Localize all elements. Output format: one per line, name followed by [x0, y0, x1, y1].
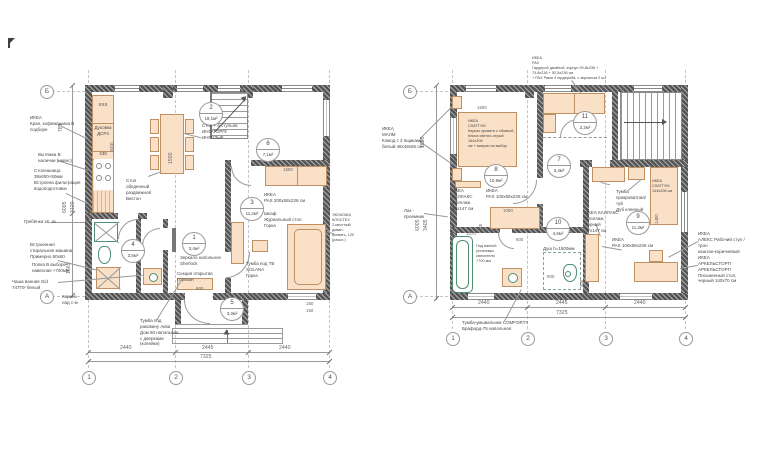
f1-grid-bubble-3: 3 [242, 371, 256, 385]
f2-ann-pax100b: ИКЕА PAX 100х58х236 см [612, 237, 656, 249]
floor-plan-sheet: 1 2 3 4 Б А [0, 0, 757, 459]
f1-room-tag-4: 43,5м² [121, 239, 145, 263]
f1-room-tag-3: 311,2м² [240, 197, 264, 221]
f2-grid-bubble-2: 2 [521, 332, 535, 346]
f2-pier [525, 85, 534, 98]
f1-ann-hood: Вытяжка В наличии (навес) [38, 152, 82, 164]
f1-mirror [172, 228, 176, 252]
f2-window-top-3 [634, 85, 662, 92]
f2-bedside-table-2 [628, 167, 645, 180]
f2-monitor [649, 250, 663, 262]
f1-entry-door-arc [184, 300, 210, 324]
f1-oven-label: Духовка ДСР4 [92, 125, 114, 137]
f1-kitchen-430-label: 430 [92, 151, 114, 157]
f2-ann-pax100a: ИКЕА PAX 100х58х236 см [486, 188, 530, 200]
f2-room-tag-8: 810,9м² [484, 164, 508, 188]
f1-sofa [287, 224, 326, 290]
f1-dim-v2: 6005 [62, 201, 68, 213]
f2-dim-line-1 [452, 307, 685, 308]
f1-ann-counter: Столешница 38х600+50мм Встроена фильтрац… [34, 168, 82, 191]
f2-ann-hatch: Лаз - проемник [404, 208, 434, 220]
f1-ann-tv: Тумба под ТВ SOLANA Горка [246, 261, 290, 279]
f2-ann-tub: Под ванной установка смесителя +700 мм [476, 244, 500, 264]
f2-stairs [620, 92, 682, 160]
f2-nightstand-2 [452, 168, 462, 181]
f2-nightstand-1 [452, 96, 462, 109]
f2-pax-hall [490, 207, 540, 229]
f1-dim-step1: 150 [306, 301, 313, 306]
f1-wall-wc-a [163, 219, 168, 228]
f2-stairs-arrow-line [624, 122, 664, 123]
f2-dim-b3: 2440 [634, 300, 646, 306]
f1-wall-wc-b [163, 250, 168, 293]
f1-ann-mirror: Зеркало напольное Sherlock [180, 255, 222, 267]
f1-dim-b2: 2445 [202, 345, 214, 351]
f2-dim-bed8: 1600 [477, 105, 487, 110]
f1-porch-edge [175, 324, 248, 325]
f1-window-top-4 [282, 85, 312, 92]
f1-grid-bubble-B: Б [40, 85, 54, 99]
f1-dim-total: 7325 [200, 354, 212, 360]
f1-kitchen-box-label: ХХХ [92, 102, 114, 108]
f1-burner-icon [105, 163, 111, 169]
f1-toilet [98, 246, 111, 264]
f2-pax-divider [574, 94, 575, 113]
f2-bathtub-inner [456, 240, 469, 289]
f1-chair [185, 155, 194, 170]
f2-ann-kallax1: ИКЕА КАЛЛАКС Стеллаж 42х147 см [452, 188, 484, 211]
f2-grid-bubble-A: А [403, 290, 417, 304]
f1-ann-vanity: Тумба под раковину Аква Дом 60 напольная… [140, 318, 180, 347]
f1-kitchen-door-arc [118, 219, 138, 239]
f1-dim-line-1 [88, 352, 329, 353]
f1-room-tag-1: 13,4м² [182, 232, 206, 256]
f2-window-top-2 [545, 85, 571, 92]
f2-wall-hall-b [610, 160, 688, 167]
f1-pax-wardrobe [265, 166, 327, 186]
f1-chair [185, 119, 194, 134]
f2-stair-wall [612, 92, 618, 160]
f1-kitchen-dim: 600 [110, 142, 116, 151]
f2-grid-bubble-4: 4 [679, 332, 693, 346]
f2-window-left [450, 118, 457, 154]
f2-ann-malm: ИКЕА МАЛМ Комод с 3 ящиками, белый 48х48… [382, 126, 430, 149]
f1-wall-kitchen-a [85, 213, 118, 219]
f1-ann-sofa: ЭКОКОЖА КОНСТЕХ 2-местный диван- кровать… [332, 213, 358, 243]
f2-dim-v2: 6005 [415, 219, 421, 231]
f1-bath-door-arc [142, 228, 160, 246]
f2-room-tag-10: 104,6м² [546, 217, 570, 241]
f2-shower-zone [543, 252, 581, 290]
f1-sink-bowl [149, 273, 158, 282]
f2-kallax-shelf [455, 181, 481, 188]
f1-porch-arrow-head-icon [224, 330, 230, 335]
f2-bath-door-arc [498, 233, 514, 249]
f1-pier-1 [163, 85, 173, 98]
f2-room-tag-7: 73,4м² [547, 154, 571, 178]
f1-ann-comb: Гребёнка хв, гв [24, 219, 64, 225]
f2-window-right [681, 192, 688, 232]
f2-dim-shower-w: 600 [516, 237, 523, 242]
f1-ann-cornice: Карниз над с-м [62, 294, 92, 306]
f1-grid-bubble-2: 2 [169, 371, 183, 385]
f1-sink-counter [93, 191, 113, 212]
f1-dim-door: 900 [196, 286, 203, 291]
f1-dim-line-2 [88, 361, 329, 362]
f1-ann-section: Секция открытая Горизон [177, 271, 217, 283]
f1-burner-icon [96, 163, 102, 169]
f1-window-right [323, 100, 330, 136]
f2-ann-comforty: Тумба-умывальник COMFORTY Брафорд-75 нап… [462, 320, 532, 332]
f1-ann-washer: Встроенная стиральная машина Примерно 60… [30, 242, 76, 260]
f2-ann-bed8: ИКЕА СЛАТТУМ Каркас кровати с обивкой, К… [468, 119, 516, 149]
f1-burner-icon [96, 175, 102, 181]
f1-window-top-1 [115, 85, 139, 92]
f2-kallax-black [585, 234, 599, 282]
f2-pax-room11-a [543, 93, 605, 114]
f1-dim-step2: 150 [306, 308, 313, 313]
f1-ann-shelf: Полка В выборе навесная +700мм [32, 262, 76, 274]
f2-dim-bath: 1370 [466, 231, 476, 236]
f1-wall-living-b [225, 278, 231, 293]
f2-bathtub [452, 236, 473, 293]
f1-dining-table [160, 114, 184, 174]
f1-room-tag-6: 67,1м² [256, 138, 280, 162]
f1-chair [185, 137, 194, 152]
f2-desk [634, 262, 678, 282]
f1-sofa-cushion [294, 229, 322, 285]
f1-burner-icon [105, 175, 111, 181]
f2-ann-tumba9: Тумба прикроватная/туй Дуб клееный [616, 189, 650, 212]
f2-dim-pax-d: 420 [478, 224, 483, 231]
f1-ann-faucet: ИКЕА Кран, кофемашина В подборе [30, 115, 82, 133]
f1-room6-door-arc [231, 166, 251, 186]
f1-grid-bubble-1: 1 [82, 371, 96, 385]
f2-dim-b2: 2445 [556, 300, 568, 306]
f2-grid-bubble-3: 3 [599, 332, 613, 346]
f1-pax-divider [297, 167, 298, 185]
f2-dim-line-2 [452, 317, 685, 318]
f2-grid-bubble-B: Б [403, 85, 417, 99]
f2-vanity-bowl [508, 273, 518, 283]
f1-kitchen-divider-1 [93, 123, 113, 124]
f2-window-top-1 [466, 85, 496, 92]
f1-shower-cross [94, 223, 119, 243]
f2-shower-drain [565, 271, 571, 277]
f2-dim-shower-d: 900 [547, 274, 554, 279]
f1-window-top-2 [177, 85, 203, 92]
f2-pax-room11-b [543, 114, 556, 133]
f1-grid-bubble-A: А [40, 290, 54, 304]
f1-shower-cross [95, 221, 120, 241]
f1-ann-dining-set: Стол + 6 стульев ИНГАТОРП/ИНГОЛЬФ [202, 123, 248, 141]
f2-room-tag-9: 911,3м² [626, 211, 650, 235]
f2-dim-kallax: 400 [579, 280, 584, 287]
section-marker-flag-icon [10, 38, 15, 43]
f1-pax-dim: 1600 [283, 167, 293, 172]
f2-ann-bed9: ИКЕА СЛАТТУМ 144х206 см [652, 179, 678, 194]
f1-dim-b1: 2440 [120, 345, 132, 351]
f1-entry-opening [186, 293, 212, 300]
f1-ann-pax: ИКЕА PAX 200х58х236 см [264, 192, 310, 204]
f1-ann-bowl: Чаша ванная Gid 747ПУ белый [12, 279, 54, 291]
f1-side-table [252, 240, 268, 252]
f1-dim-b3: 2440 [279, 345, 291, 351]
f1-room-tag-5: 53,3м² [220, 297, 244, 321]
f1-chair [150, 155, 159, 170]
f2-vanity [502, 268, 522, 287]
f2-dim-line-v [436, 85, 437, 300]
f1-chair [150, 137, 159, 152]
f2-grid-bubble-1: 1 [446, 332, 460, 346]
f2-ann-arkel: ИКЕА АРКЕЛЬСТОРП АРКЕЛЬСТОРП Письменный … [698, 255, 754, 284]
f1-window-bottom [288, 293, 316, 300]
f2-axis-3-line [605, 70, 606, 329]
f2-dim-bed9: 1400 [654, 214, 659, 224]
f1-leader [148, 171, 161, 177]
f2-room11-divider [543, 137, 607, 138]
f2-dim-total: 7325 [556, 310, 568, 316]
f2-dim-v3: 3405 [423, 219, 429, 231]
f1-dim-v3: 3120 [70, 201, 76, 213]
f2-ann-pax-top: ИКЕА PAX Гардероб двойной, корпус 99,8х2… [532, 56, 652, 81]
f2-ann-kallax2: ИКЕА КАЛЛАКС Стеллаж, черный 77х147 см [585, 210, 621, 233]
f2-window-bottom-1 [468, 293, 494, 300]
f1-window-top-3 [218, 85, 240, 92]
f2-room-tag-11: 112,2м² [573, 111, 597, 135]
f2-bedside-table-1 [592, 167, 625, 182]
f1-grid-bubble-4: 4 [323, 371, 337, 385]
f1-ann-side-table: Шкаф Журнальный стол Горка [264, 211, 304, 229]
f2-ann-alex: ИКЕА АЛЕКС Рабочий стул /трон каштан-кор… [698, 231, 754, 254]
f2-dim-pax: 1000 [503, 208, 513, 213]
f1-tv-stand [231, 222, 244, 264]
f1-stove [94, 159, 113, 190]
f2-ann-shower: Душ h=1500мм [543, 246, 579, 252]
f1-chair [150, 119, 159, 134]
f1-shower-tray [94, 222, 118, 242]
f2-dim-b1: 2440 [478, 300, 490, 306]
f2-wall-hall-a [580, 160, 592, 167]
f1-sink-vanity [143, 268, 162, 285]
f1-table-dim: 1500 [168, 152, 174, 164]
f2-window-bottom-2 [620, 293, 652, 300]
f1-ann-dining-table: Стол обеденный раздвижной Вистон [126, 178, 160, 201]
